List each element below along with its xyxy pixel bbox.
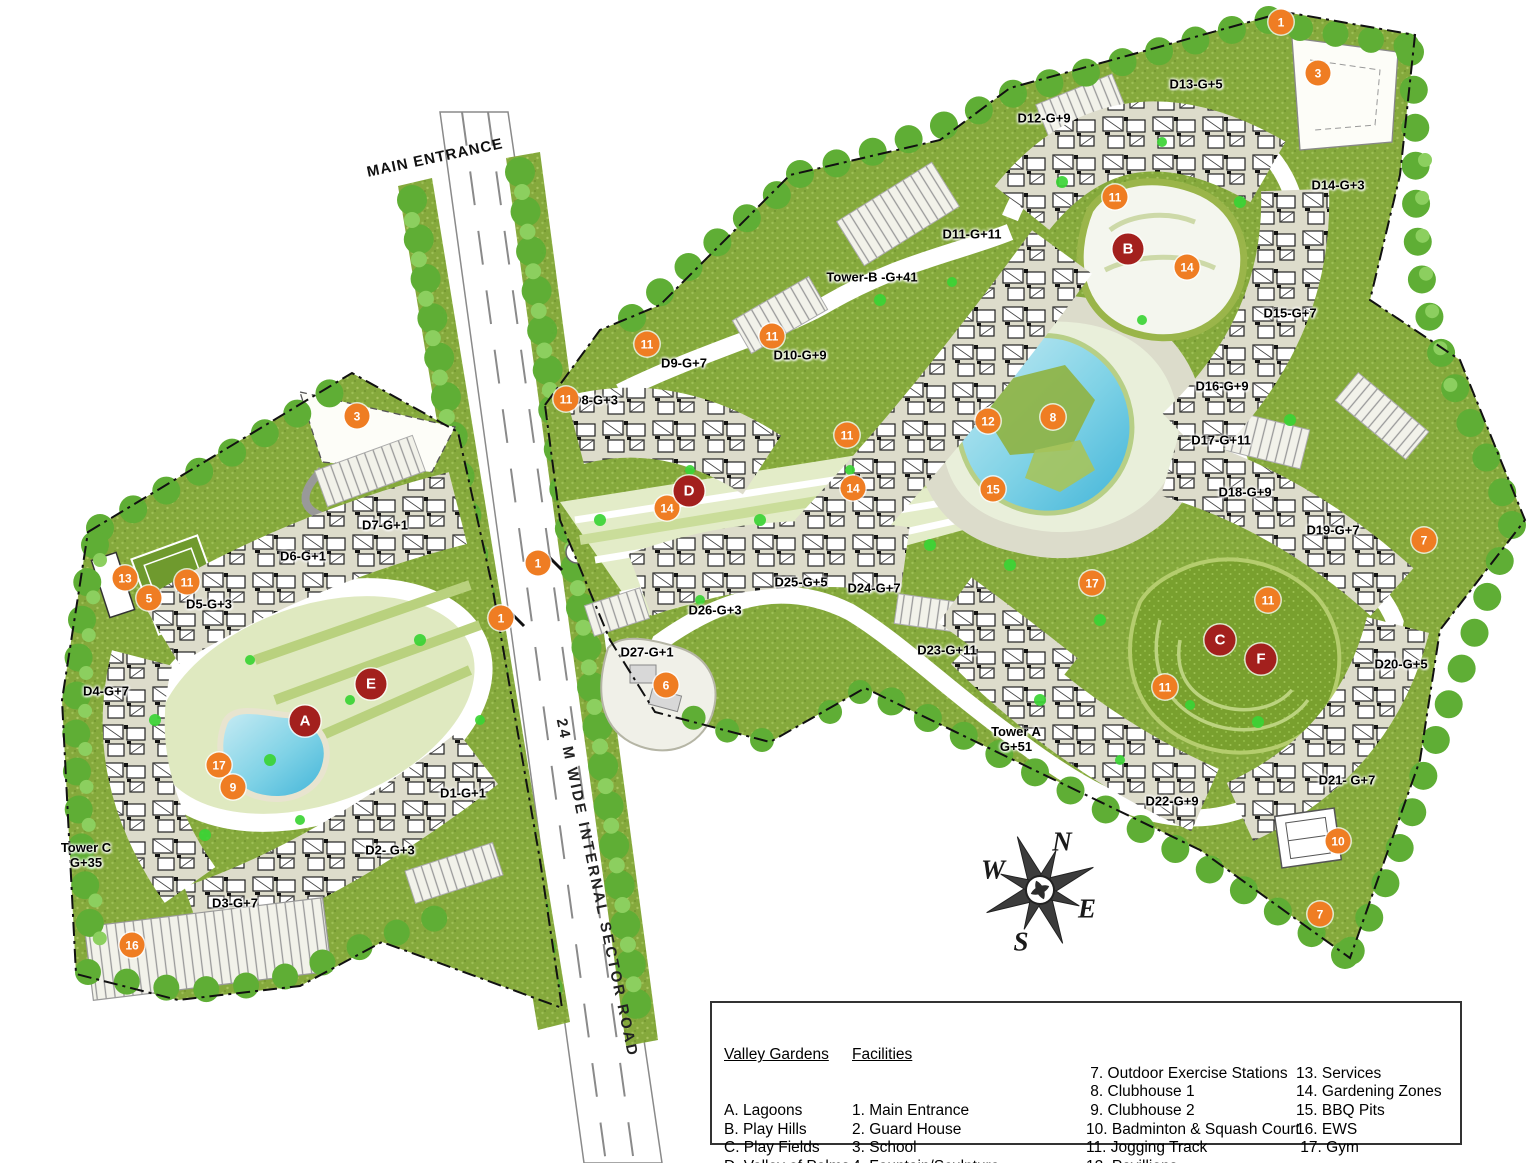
legend-facilities-column-3: 13. Services14. Gardening Zones15. BBQ P…: [1296, 1009, 1442, 1163]
legend-facilities-title: Facilities: [852, 1046, 1065, 1065]
garden-marker-E: E: [356, 669, 387, 700]
facility-marker-1: 1: [526, 551, 551, 576]
facility-marker-11: 11: [175, 570, 200, 595]
facility-marker-12: 12: [976, 409, 1001, 434]
garden-marker-F: F: [1246, 644, 1277, 675]
compass-e: E: [1078, 894, 1096, 925]
garden-marker-C: C: [1205, 625, 1236, 656]
legend-box: Valley Gardens A. LagoonsB. Play HillsC.…: [710, 1001, 1462, 1145]
legend-facilities-column-2: 7. Outdoor Exercise Stations 8. Clubhous…: [1086, 1009, 1300, 1163]
legend-facility-item: 7. Outdoor Exercise Stations: [1086, 1065, 1300, 1084]
legend-facility-item: 12. Pavillions: [1086, 1158, 1300, 1163]
legend-facility-item: 11. Jogging Track: [1086, 1139, 1300, 1158]
facility-marker-9: 9: [221, 775, 246, 800]
facility-marker-11: 11: [1256, 588, 1281, 613]
facility-marker-11: 11: [1153, 675, 1178, 700]
facility-marker-11: 11: [635, 332, 660, 357]
facility-marker-3: 3: [345, 404, 370, 429]
legend-gardens-column: Valley Gardens A. LagoonsB. Play HillsC.…: [724, 1009, 857, 1163]
garden-marker-D: D: [674, 476, 705, 507]
legend-facility-item: 13. Services: [1296, 1065, 1442, 1084]
site-plan-canvas: MAIN ENTRANCE 24 M WIDE INTERNAL SECTOR …: [0, 0, 1536, 1163]
garden-marker-A: A: [290, 706, 321, 737]
facility-marker-8: 8: [1041, 405, 1066, 430]
facility-marker-16: 16: [120, 933, 145, 958]
facility-marker-11: 11: [835, 423, 860, 448]
left-cluster: [62, 373, 562, 1008]
facility-marker-17: 17: [207, 753, 232, 778]
legend-garden-item: C. Play Fields: [724, 1139, 857, 1158]
legend-facility-item: 16. EWS: [1296, 1121, 1442, 1140]
legend-facility-item: 10. Badminton & Squash Court: [1086, 1121, 1300, 1140]
school-east: [1292, 38, 1398, 150]
garden-marker-B: B: [1113, 234, 1144, 265]
facility-marker-13: 13: [113, 566, 138, 591]
compass-rose: [964, 814, 1116, 966]
facility-marker-1: 1: [489, 606, 514, 631]
facility-marker-6: 6: [654, 673, 679, 698]
legend-garden-item: D. Valley of Palms: [724, 1158, 857, 1163]
facility-marker-11: 11: [760, 324, 785, 349]
legend-facility-item: 9. Clubhouse 2: [1086, 1102, 1300, 1121]
facility-marker-17: 17: [1080, 571, 1105, 596]
legend-garden-item: A. Lagoons: [724, 1102, 857, 1121]
site-plan-art: [0, 0, 1536, 1163]
facility-marker-14: 14: [841, 476, 866, 501]
legend-facility-item: 17. Gym: [1296, 1139, 1442, 1158]
legend-facility-item: 14. Gardening Zones: [1296, 1083, 1442, 1102]
compass-s: S: [1013, 927, 1028, 958]
legend-facility-item: 15. BBQ Pits: [1296, 1102, 1442, 1121]
compass-w: W: [981, 855, 1005, 886]
facility-marker-3: 3: [1306, 61, 1331, 86]
play-fields: [1130, 559, 1339, 752]
legend-facility-item: 4. Fountain/Sculpture: [852, 1158, 1065, 1163]
facility-marker-14: 14: [1175, 255, 1200, 280]
legend-facility-item: 2. Guard House: [852, 1121, 1065, 1140]
facility-marker-11: 11: [554, 387, 579, 412]
facility-marker-7: 7: [1412, 528, 1437, 553]
compass-n: N: [1052, 827, 1072, 858]
legend-facility-item: 1. Main Entrance: [852, 1102, 1065, 1121]
facility-marker-5: 5: [137, 586, 162, 611]
legend-gardens-title: Valley Gardens: [724, 1046, 857, 1065]
legend-facility-item: 8. Clubhouse 1: [1086, 1083, 1300, 1102]
legend-garden-item: B. Play Hills: [724, 1121, 857, 1140]
facility-marker-7: 7: [1308, 902, 1333, 927]
legend-facilities-column-1: Facilities 1. Main Entrance2. Guard Hous…: [852, 1009, 1065, 1163]
facility-marker-1: 1: [1269, 10, 1294, 35]
facility-marker-10: 10: [1326, 829, 1351, 854]
facility-marker-11: 11: [1103, 185, 1128, 210]
legend-facility-item: 3. School: [852, 1139, 1065, 1158]
facility-marker-15: 15: [981, 477, 1006, 502]
